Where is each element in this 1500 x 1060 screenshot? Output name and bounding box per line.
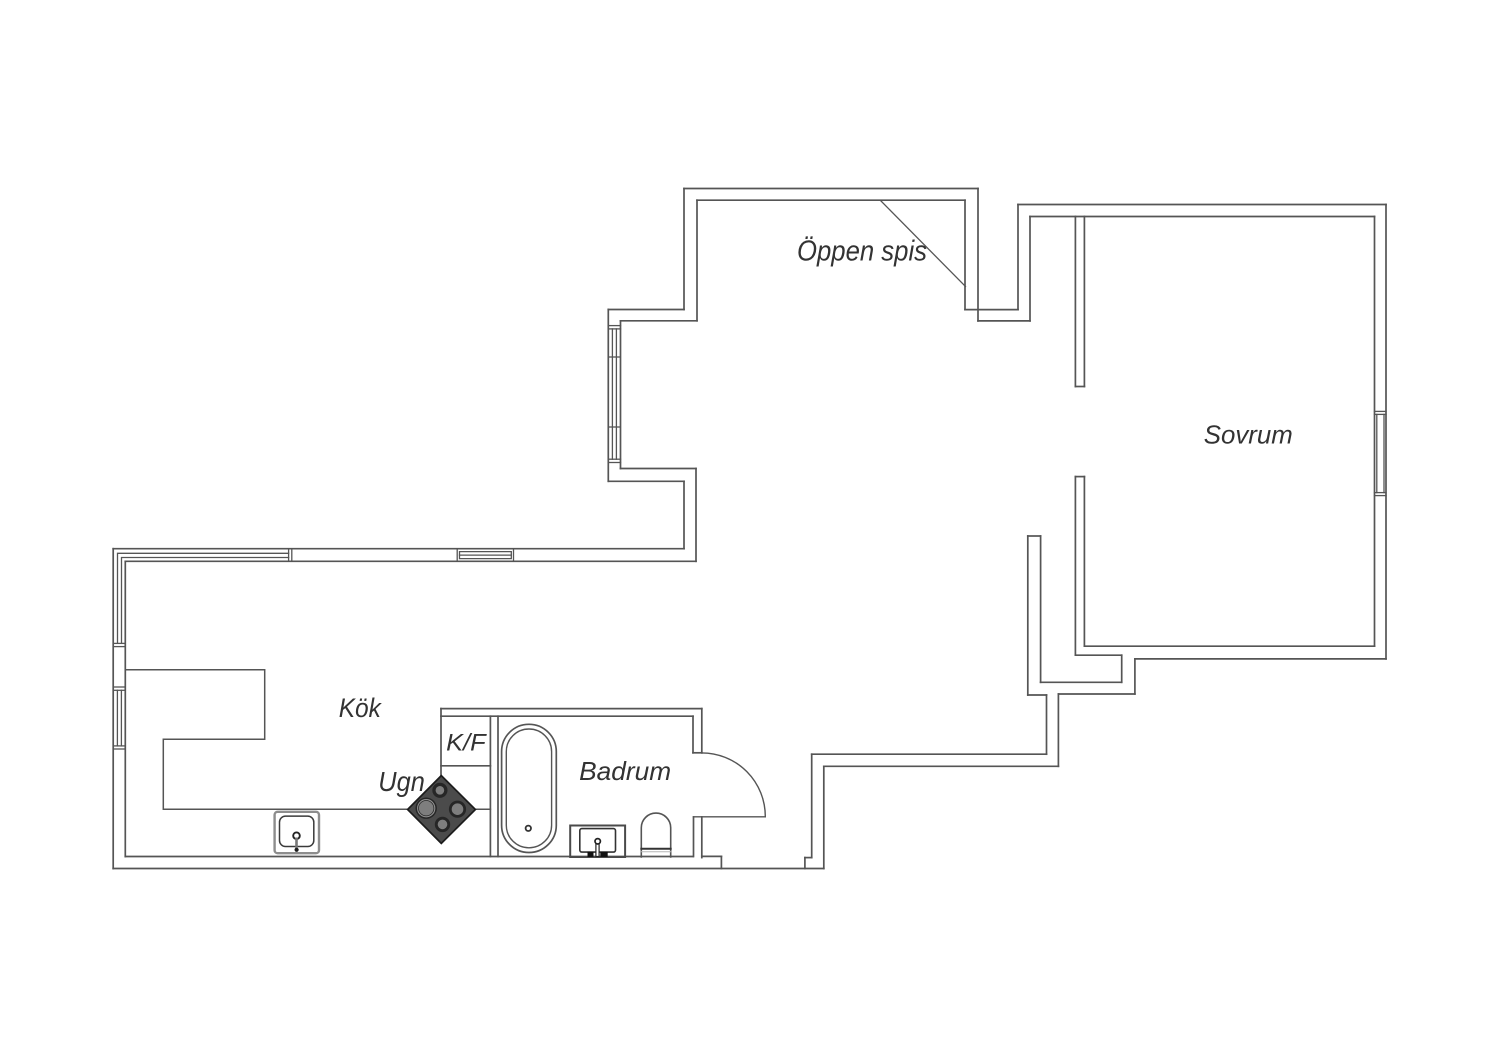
svg-text:K/F: K/F <box>446 729 487 756</box>
svg-text:Sovrum: Sovrum <box>1204 419 1293 449</box>
svg-text:Öppen spis: Öppen spis <box>797 236 927 268</box>
svg-text:Ugn: Ugn <box>378 766 425 797</box>
svg-text:Badrum: Badrum <box>579 756 671 786</box>
svg-text:Kök: Kök <box>339 693 382 723</box>
